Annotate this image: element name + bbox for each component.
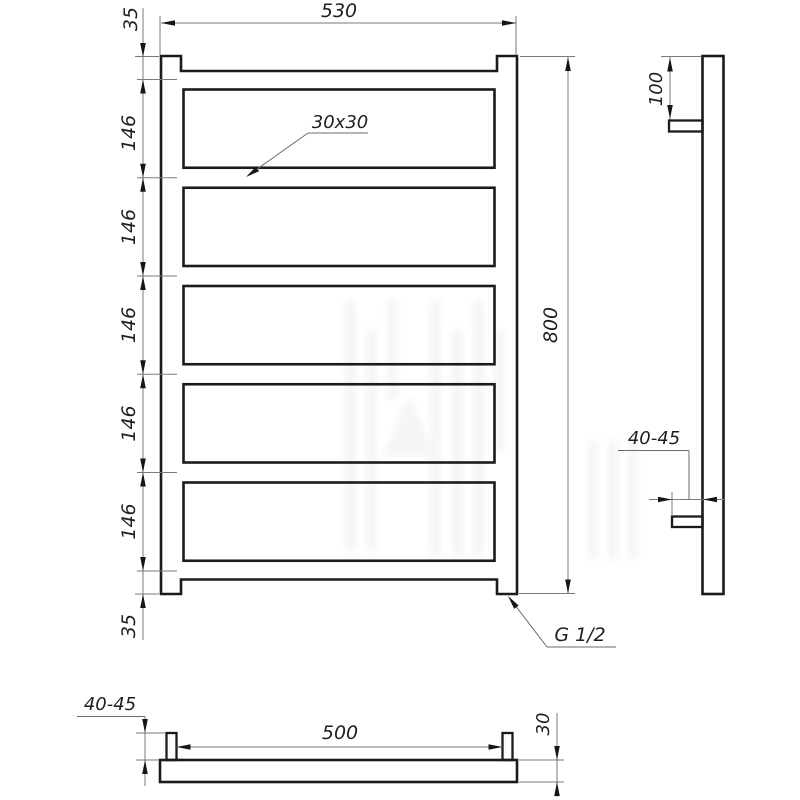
technical-drawing: 35 146 146 146 146 146 35 530 800 30x30 xyxy=(0,0,800,800)
dim-label-146-3: 146 xyxy=(118,307,140,343)
dim-label-146-5: 146 xyxy=(118,503,140,539)
dim-spacing-500: 500 xyxy=(177,722,503,750)
rung-opening-5 xyxy=(184,483,495,561)
dim-label-500: 500 xyxy=(322,722,358,744)
dim-label-top-35: 35 xyxy=(120,7,142,31)
dim-label-40-45-bottom: 40-45 xyxy=(84,694,136,715)
dim-label-100: 100 xyxy=(646,72,667,106)
dim-label-40-45-side: 40-45 xyxy=(628,428,680,449)
dim-label-30: 30 xyxy=(533,713,554,736)
callout-profile-30x30: 30x30 xyxy=(244,112,368,179)
dim-chain-left: 35 146 146 146 146 146 35 xyxy=(118,7,177,640)
drawing-sheet: 35 146 146 146 146 146 35 530 800 30x30 xyxy=(0,0,800,800)
dim-wall-clearance-bottom: 40-45 xyxy=(77,694,165,786)
rung-opening-2 xyxy=(184,188,495,266)
label-30x30: 30x30 xyxy=(312,112,368,133)
bottom-bar xyxy=(160,760,517,782)
dim-width-530: 530 xyxy=(160,0,516,55)
side-top-bracket xyxy=(669,121,703,132)
side-bottom-bracket xyxy=(672,517,703,528)
dim-label-bottom-35: 35 xyxy=(118,614,140,638)
label-g12: G 1/2 xyxy=(554,624,605,646)
frame-outline xyxy=(161,56,517,594)
dim-label-146-4: 146 xyxy=(118,405,140,441)
dim-depth-30: 30 xyxy=(519,713,564,797)
callout-thread-g12: G 1/2 xyxy=(506,594,616,647)
rung-opening-4 xyxy=(184,384,495,462)
dim-label-530: 530 xyxy=(321,0,357,22)
bottom-right-bracket xyxy=(503,733,513,760)
bottom-left-bracket xyxy=(167,733,177,760)
dim-label-800: 800 xyxy=(540,307,562,343)
watermark xyxy=(345,300,638,560)
side-view xyxy=(669,56,724,594)
dim-label-146-2: 146 xyxy=(118,209,140,245)
dim-label-146-1: 146 xyxy=(118,115,140,151)
side-tube xyxy=(703,56,724,594)
rung-opening-3 xyxy=(184,286,495,364)
dim-height-800: 800 xyxy=(519,57,575,594)
front-view xyxy=(161,56,517,594)
dim-bracket-100: 100 xyxy=(646,57,701,120)
